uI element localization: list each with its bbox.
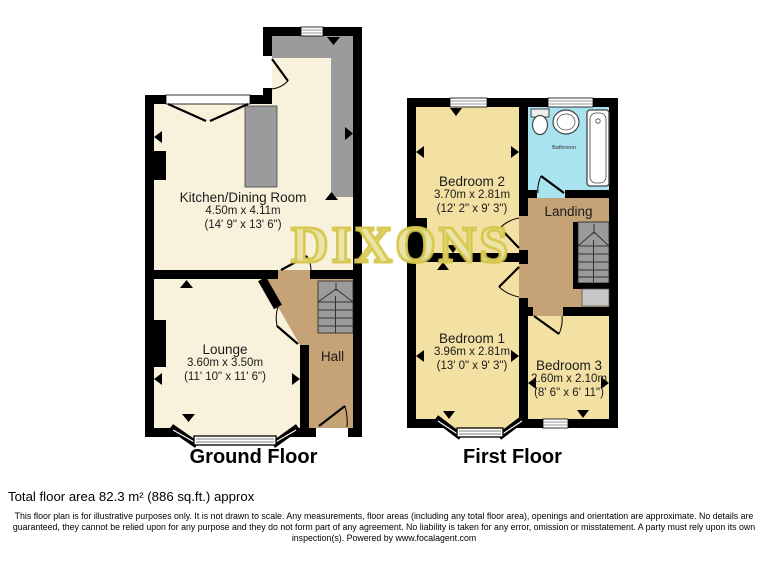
sink-icon [553,110,579,134]
bathroom-window [548,98,593,107]
room-metric: 3.96m x 2.81m [412,346,532,360]
kitchen-chimney-breast [154,151,166,180]
room-metric: 3.70m x 2.81m [412,189,532,203]
room-name: Bedroom 3 [520,358,618,373]
bathtub-icon [587,110,609,186]
room-imperial: (11' 10" x 11' 6") [150,371,300,385]
bedroom2-label: Bedroom 2 3.70m x 2.81m (12' 2" x 9' 3") [412,174,532,216]
floorplan-page: Kitchen/Dining Room 4.50m x 4.11m (14' 9… [0,0,768,576]
room-imperial: (12' 2" x 9' 3") [412,203,532,217]
agency-watermark: DIXONS [281,216,521,275]
kitchen-counter-right [331,36,353,197]
lounge-label: Lounge 3.60m x 3.50m (11' 10" x 11' 6") [150,342,300,384]
room-name: Bedroom 2 [412,174,532,189]
room-name: Landing [528,204,609,219]
room-name: Bedroom 1 [412,331,532,346]
hall-label: Hall [305,349,360,364]
landing-label: Landing [528,204,609,219]
ground-floor-caption: Ground Floor [145,446,362,469]
back-window [301,27,323,36]
total-floor-area: Total floor area 82.3 m² (886 sq.ft.) ap… [8,489,254,504]
bedroom2-window [450,98,487,107]
room-imperial: (8' 6" x 6' 11") [520,387,618,401]
bedroom1-label: Bedroom 1 3.96m x 2.81m (13' 0" x 9' 3") [412,331,532,373]
bedroom3-window [543,419,568,428]
lounge-bay-window [171,427,298,445]
room-name: Hall [305,349,360,364]
bedroom1-bay-window [436,418,524,437]
ground-stairs-icon [318,281,353,333]
room-metric: 2.60m x 2.10m [520,373,618,387]
room-imperial: (13' 0" x 9' 3") [412,360,532,374]
room-name: Kitchen/Dining Room [163,190,323,205]
kitchen-island-counter [245,106,277,187]
first-floor-caption: First Floor [407,446,618,469]
toilet-icon [531,109,549,135]
room-name: Lounge [150,342,300,357]
stairs-cupboard [582,289,609,306]
room-metric: 3.60m x 3.50m [150,357,300,371]
disclaimer-text: This floor plan is for illustrative purp… [2,511,766,545]
bedroom3-label: Bedroom 3 2.60m x 2.10m (8' 6" x 6' 11") [520,358,618,400]
room-name: Bathroom [552,145,576,151]
bathroom-label: Bathroom [540,145,588,151]
